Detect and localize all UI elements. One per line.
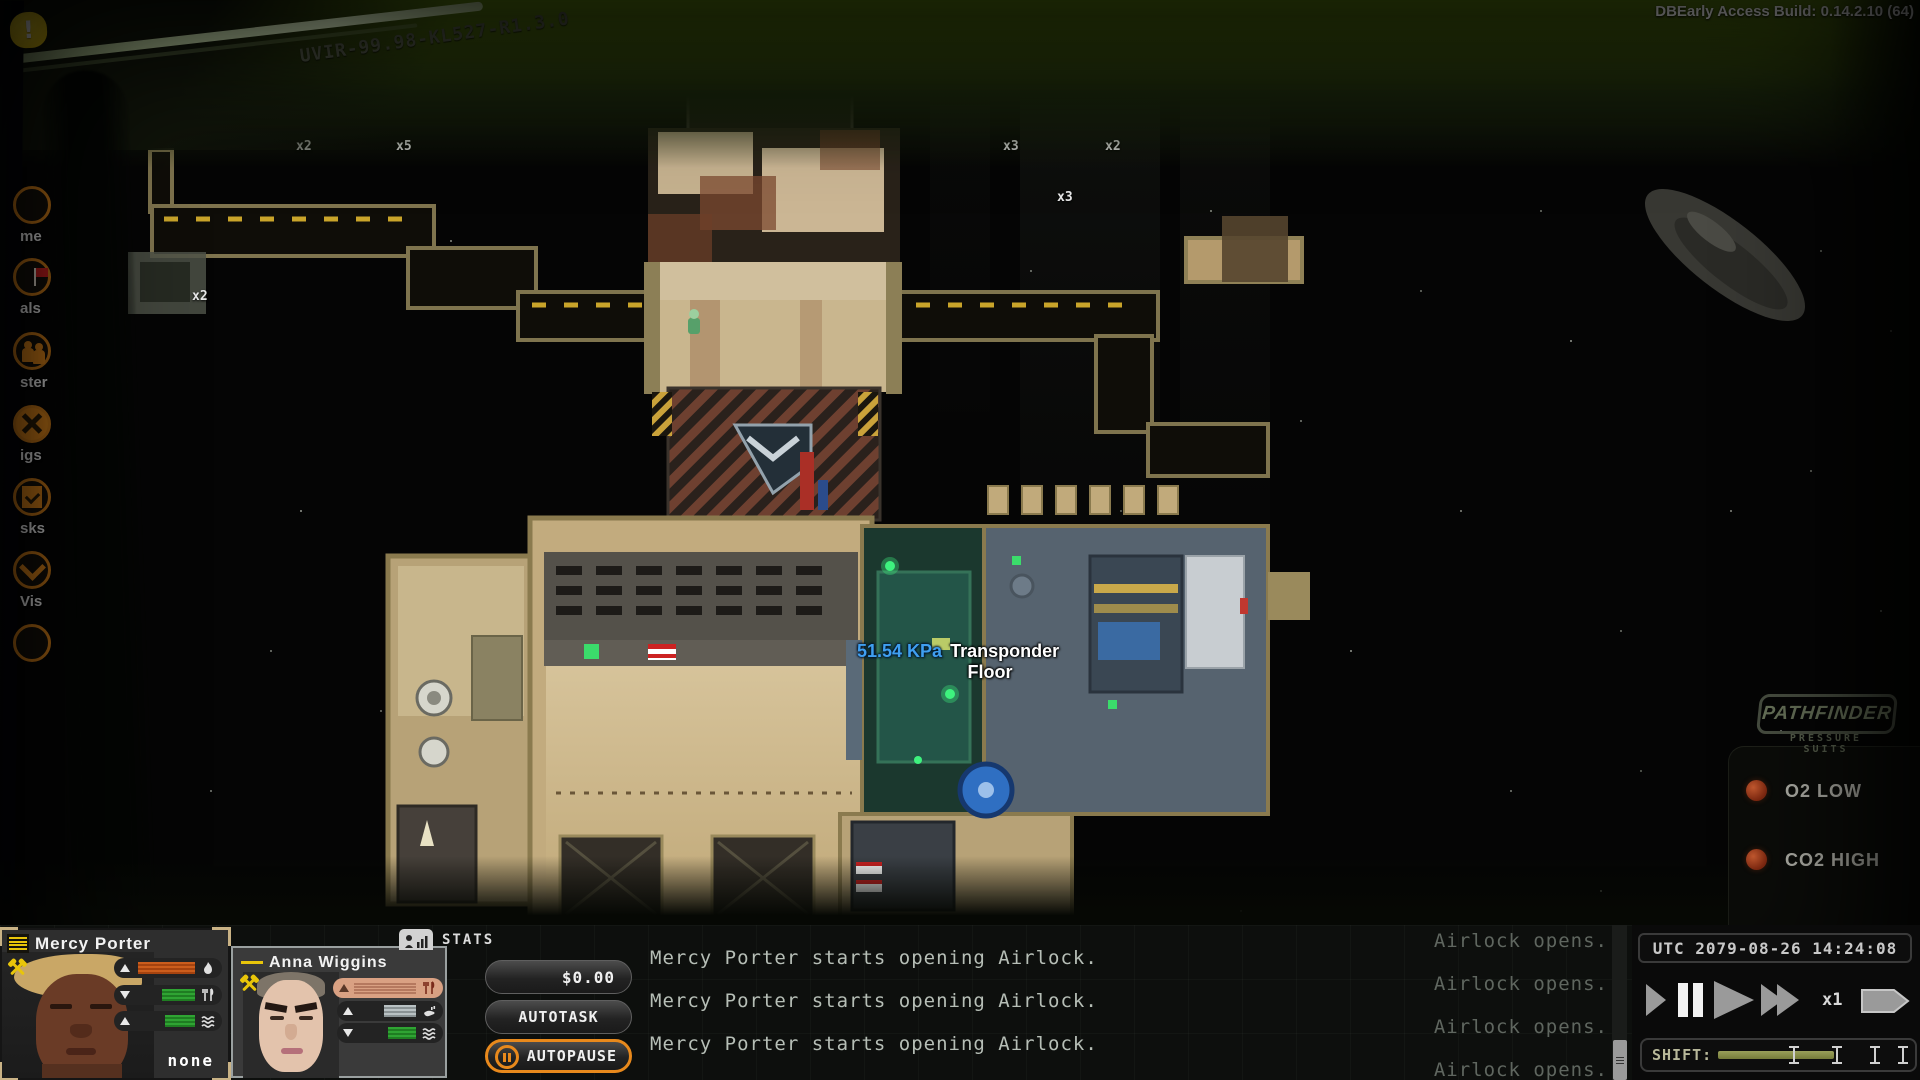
bar-track [358,1005,416,1017]
stats-tab-label[interactable]: STATS [442,932,494,948]
sidebar-extra-icon[interactable] [13,624,51,662]
shift-tick [1789,1046,1799,1064]
suit-brand-badge: PATHFINDER [1756,694,1898,734]
card-collapse-icon[interactable] [241,961,263,964]
sidebar-item-ui-vis[interactable]: Vis [20,593,42,610]
log-message: Mercy Porter starts opening Airlock. [650,990,1098,1012]
need-bar-comfort[interactable] [114,1011,222,1031]
crew-icon [33,350,45,364]
shift-tick [1870,1046,1880,1064]
hovered-object-name: Floor [942,662,1038,683]
sidebar-item-game[interactable]: me [20,228,42,245]
utc-clock: UTC 2079-08-26 14:24:08 [1638,933,1912,963]
bar-track [135,989,195,1001]
selection-corner [0,1062,18,1080]
autopause-button[interactable]: AUTOPAUSE [485,1039,632,1073]
avatar-nose [285,1024,297,1040]
bar-track [135,962,195,974]
hammer-tools-icon [7,958,27,978]
avatar-neck [42,1064,122,1078]
pause-icon[interactable] [1678,983,1706,1017]
warning-icon[interactable]: ! [9,11,48,49]
menu-icon[interactable] [13,186,51,224]
need-bar-food[interactable] [114,985,222,1005]
log-message: Mercy Porter starts opening Airlock. [650,1033,1098,1055]
shift-tick [1832,1046,1842,1064]
visor-frame-bottom [0,856,1920,926]
need-bar-temperature[interactable] [114,958,222,978]
avatar-mouth [281,1048,303,1054]
log-message: Airlock opens. [1434,1016,1608,1038]
sidebar-item-rigs[interactable]: igs [20,447,42,464]
avatar-eye [90,1004,112,1009]
flag-icon [36,268,48,277]
autopause-label: AUTOPAUSE [527,1047,617,1065]
waves-icon [421,1026,437,1040]
sidebar-item-roster[interactable]: ster [20,374,48,391]
o2-warning-label: O2 LOW [1785,781,1862,802]
trend-up-icon [343,1007,353,1015]
trend-up-icon [339,984,349,992]
trend-up-icon [120,1017,130,1025]
crew-card-anna-wiggins[interactable]: Anna Wiggins [231,946,447,1078]
event-log[interactable]: Mercy Porter starts opening Airlock. Mer… [638,925,1630,1080]
hammer-tools-icon [239,974,259,994]
crew-name: Anna Wiggins [269,954,388,972]
suit-brand-sub: PRESSURE SUITS [1764,733,1888,755]
log-message: Airlock opens. [1434,1059,1608,1080]
shift-tick [1898,1046,1908,1064]
fast-forward-icon[interactable] [1761,984,1799,1016]
wrench-x-icon[interactable] [13,405,51,443]
log-scrollbar-thumb[interactable] [1613,1040,1627,1080]
step-arrow-icon[interactable] [1860,984,1910,1018]
chevron-down-icon [19,554,46,581]
autopause-icon [495,1045,519,1069]
bar-fill [384,1005,416,1017]
need-bar-food[interactable] [333,978,443,998]
crew-name: Mercy Porter [35,934,151,954]
play-icon[interactable] [1646,984,1666,1016]
avatar-eye [299,1016,313,1020]
log-message: Airlock opens. [1434,973,1608,995]
money-button[interactable]: $0.00 [485,960,632,994]
waves-icon [200,1014,216,1028]
avatar-eye [50,1004,72,1009]
bar-fill [354,982,416,994]
need-bar-comfort[interactable] [337,1023,443,1043]
log-message: Airlock opens. [1434,930,1608,952]
trend-down-icon [343,1029,353,1037]
bar-fill [162,989,195,1001]
crew-status: none [167,1051,214,1070]
derelict-ship [1627,168,1823,342]
flame-icon [200,961,216,975]
stats-icon [404,934,428,948]
stack-count: x3 [1057,190,1073,205]
shift-track [1718,1046,1905,1064]
bar-track [354,982,416,994]
shift-fill [1718,1051,1834,1059]
o2-indicator-light [1746,780,1767,801]
crew-card-mercy-porter[interactable]: Mercy Porter none [2,930,228,1078]
shift-label: SHIFT: [1652,1046,1712,1064]
speed-label: x1 [1822,990,1842,1010]
bar-track [358,1027,416,1039]
chevron-down-icon[interactable] [13,551,51,589]
build-version-label: DBEarly Access Build: 0.14.2.10 (64) [1655,3,1914,20]
bar-fill [165,1015,195,1027]
trend-down-icon [120,991,130,999]
avatar-mouth [66,1048,96,1055]
flag-icon[interactable] [13,258,51,296]
selection-corner [212,1062,231,1080]
game-root: x2 x5 x3 x2 x3 x2 UVIR-99.98-KL527-R1.3.… [0,0,1920,1080]
log-message: Mercy Porter starts opening Airlock. [650,947,1098,969]
hover-tooltip: 51.54 KPaTransponder [857,641,1059,662]
avatar-eye [270,1016,284,1020]
need-bar-smoking[interactable] [337,1001,443,1021]
selection-corner [0,927,18,946]
hand-icon [421,1004,437,1018]
bar-fill [138,962,195,974]
bar-fill [388,1027,416,1039]
pressure-readout: 51.54 KPa [857,641,942,661]
suit-hud-panel [1728,746,1920,927]
stats-tab[interactable] [399,929,433,950]
trend-up-icon [120,964,130,972]
autotask-button[interactable]: AUTOTASK [485,1000,632,1034]
co2-warning-label: CO2 HIGH [1785,850,1880,871]
bar-track [135,1015,195,1027]
hovered-object-name: Transponder [950,641,1059,661]
clipboard-check-icon[interactable] [13,478,51,516]
stack-count: x2 [192,289,208,304]
shift-gauge[interactable]: SHIFT: [1640,1038,1917,1072]
utensils-icon [200,988,216,1002]
utensils-icon [421,981,437,995]
play-fast-icon[interactable] [1714,981,1754,1019]
co2-indicator-light [1746,849,1767,870]
clipboard-check-icon [22,486,42,508]
sidebar-item-tasks[interactable]: sks [20,520,45,537]
sidebar-item-goals[interactable]: als [20,300,41,317]
crew-icon[interactable] [13,332,51,370]
selection-corner [212,927,231,946]
suit-brand: PATHFINDER [1761,703,1893,725]
avatar-nose [70,1024,92,1038]
